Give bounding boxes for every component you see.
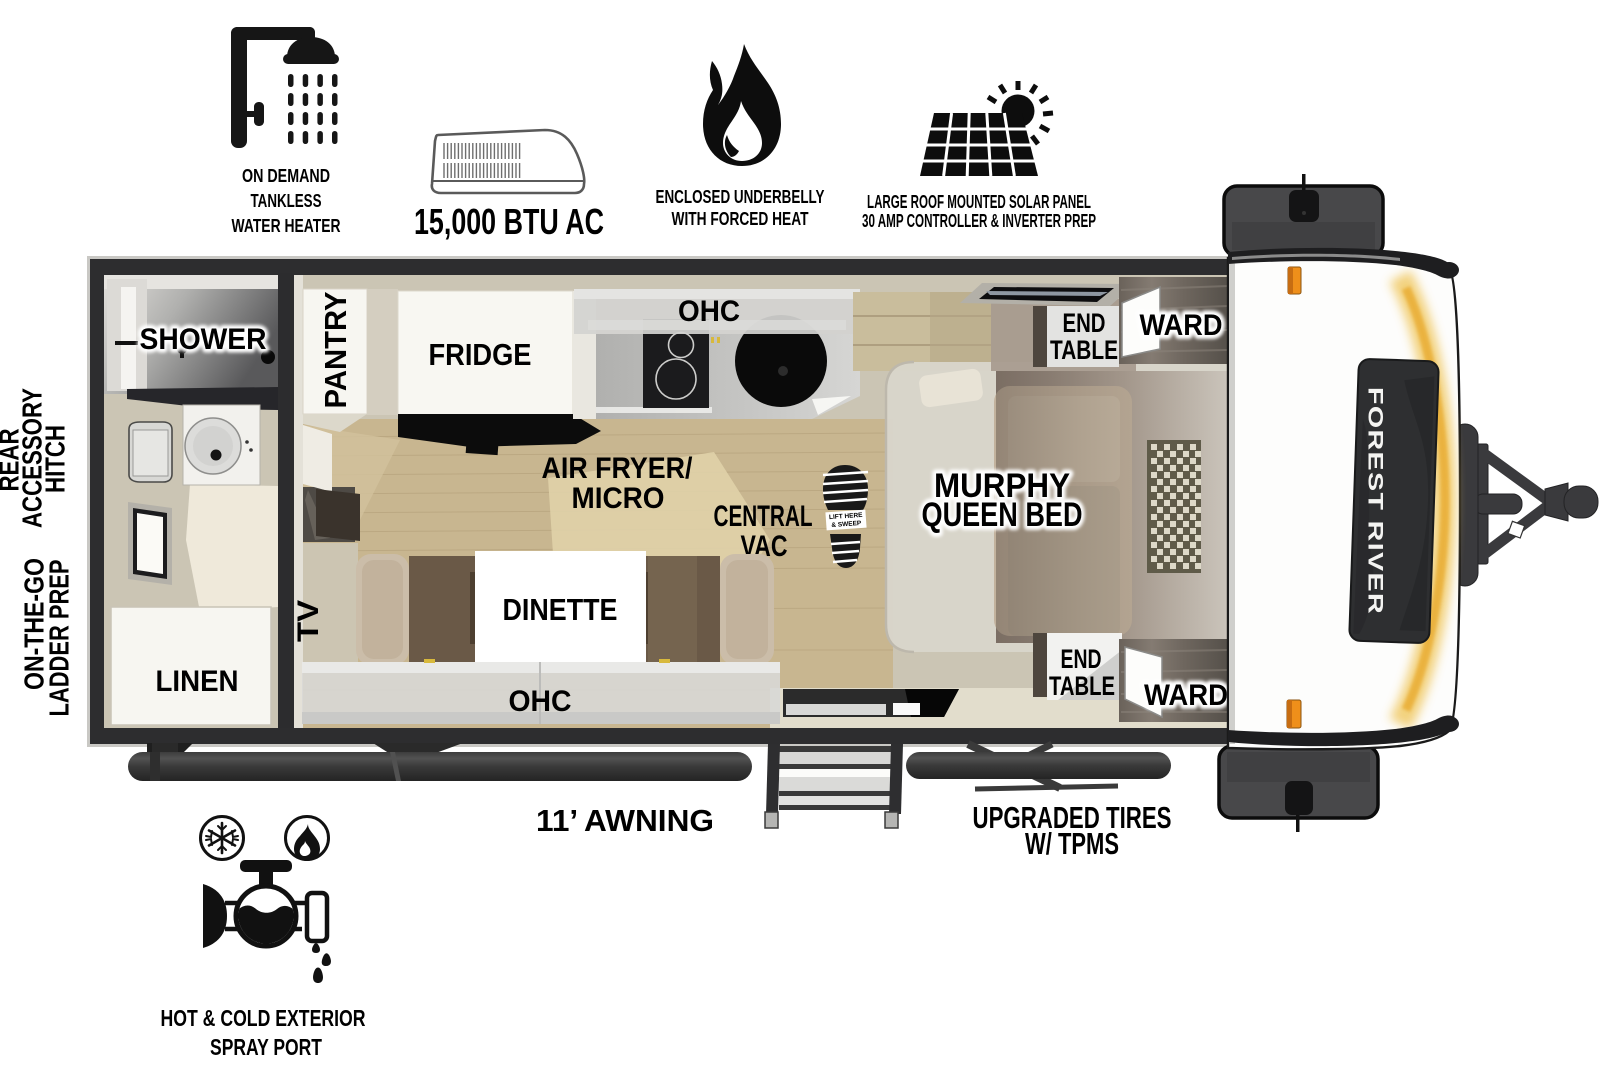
svg-text:FOREST RIVER: FOREST RIVER bbox=[1363, 387, 1386, 615]
svg-text:LARGE ROOF MOUNTED SOLAR PANEL: LARGE ROOF MOUNTED SOLAR PANEL bbox=[867, 192, 1091, 212]
svg-text:MICRO: MICRO bbox=[572, 482, 665, 515]
svg-text:QUEEN BED: QUEEN BED bbox=[922, 496, 1083, 534]
svg-text:HOT & COLD EXTERIOR: HOT & COLD EXTERIOR bbox=[161, 1005, 366, 1031]
svg-text:END: END bbox=[1063, 308, 1106, 338]
svg-text:SPRAY PORT: SPRAY PORT bbox=[210, 1034, 322, 1060]
svg-text:TABLE: TABLE bbox=[1049, 671, 1115, 701]
svg-text:WITH FORCED HEAT: WITH FORCED HEAT bbox=[672, 209, 809, 229]
svg-text:15,000 BTU AC: 15,000 BTU AC bbox=[414, 201, 604, 242]
svg-text:W/ TPMS: W/ TPMS bbox=[1025, 826, 1119, 861]
svg-text:PANTRY: PANTRY bbox=[318, 291, 353, 408]
svg-text:DINETTE: DINETTE bbox=[503, 592, 618, 627]
svg-text:WARD: WARD bbox=[1144, 679, 1228, 712]
svg-text:11’ AWNING: 11’ AWNING bbox=[536, 803, 714, 838]
svg-text:WARD: WARD bbox=[1140, 309, 1223, 342]
svg-text:LADDER PREP: LADDER PREP bbox=[43, 560, 74, 717]
svg-text:ON DEMAND: ON DEMAND bbox=[242, 166, 330, 186]
svg-text:AIR FRYER/: AIR FRYER/ bbox=[542, 452, 694, 485]
svg-text:CENTRAL: CENTRAL bbox=[714, 500, 813, 533]
svg-text:OHC: OHC bbox=[678, 295, 740, 328]
svg-text:OHC: OHC bbox=[509, 685, 572, 718]
svg-text:30 AMP CONTROLLER & INVERTER P: 30 AMP CONTROLLER & INVERTER PREP bbox=[862, 211, 1096, 231]
svg-text:SHOWER: SHOWER bbox=[140, 323, 267, 356]
svg-text:WATER HEATER: WATER HEATER bbox=[232, 216, 341, 236]
svg-text:HITCH: HITCH bbox=[39, 425, 70, 493]
svg-text:LINEN: LINEN bbox=[156, 665, 239, 698]
svg-text:END: END bbox=[1061, 644, 1102, 674]
svg-text:TANKLESS: TANKLESS bbox=[251, 191, 322, 211]
svg-text:TV: TV bbox=[292, 600, 325, 642]
svg-text:ENCLOSED UNDERBELLY: ENCLOSED UNDERBELLY bbox=[656, 187, 825, 207]
svg-text:FRIDGE: FRIDGE bbox=[429, 337, 532, 372]
svg-text:TABLE: TABLE bbox=[1050, 335, 1118, 365]
